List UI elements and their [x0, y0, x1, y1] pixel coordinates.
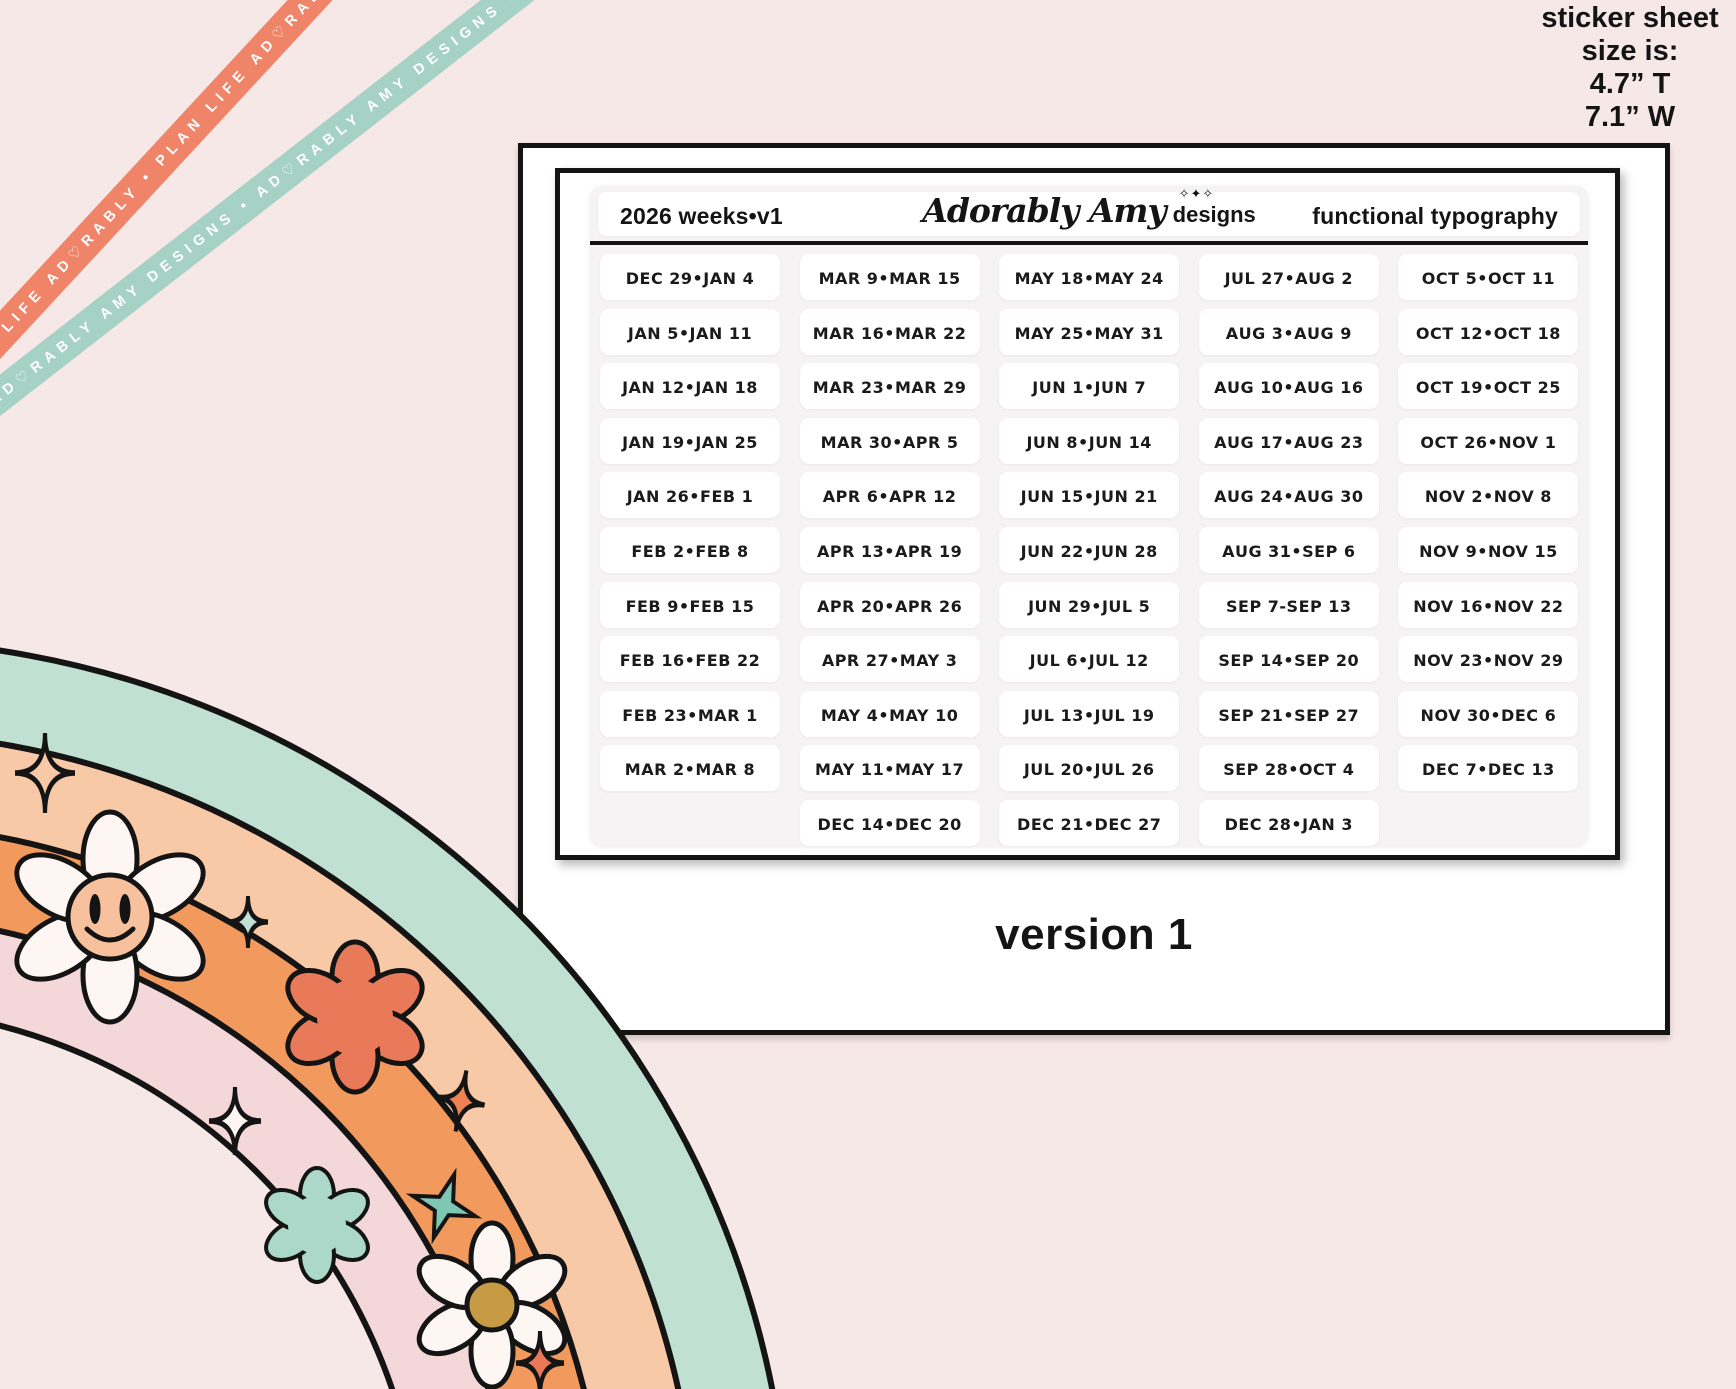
week-range-sticker: Aug 24•Aug 30 — [1199, 472, 1379, 518]
week-range-sticker: Jul 6•Jul 12 — [999, 636, 1179, 682]
size-note: sticker sheet size is: 4.7” T 7.1” W — [1470, 2, 1736, 134]
week-range-sticker: Oct 19•Oct 25 — [1398, 363, 1578, 409]
week-range-sticker: Nov 2•Nov 8 — [1398, 472, 1578, 518]
week-range-sticker: Aug 31•Sep 6 — [1199, 527, 1379, 573]
week-range-sticker: Jun 29•Jul 5 — [999, 582, 1179, 628]
week-range-sticker: Dec 14•Dec 20 — [800, 800, 980, 846]
size-note-line: sticker sheet — [1470, 2, 1736, 35]
product-image: PLAN LIFE AD♡RABLY • PLAN LIFE AD♡RABLY … — [0, 0, 1736, 1389]
size-note-line: 7.1” W — [1470, 101, 1736, 134]
week-range-sticker: Mar 9•Mar 15 — [800, 254, 980, 300]
week-range-sticker: Oct 12•Oct 18 — [1398, 309, 1578, 355]
week-range-sticker: Sep 7-Sep 13 — [1199, 582, 1379, 628]
size-note-line: size is: — [1470, 35, 1736, 68]
week-range-sticker: Dec 29•Jan 4 — [600, 254, 780, 300]
week-range-sticker: Jul 13•Jul 19 — [999, 691, 1179, 737]
week-range-sticker: Jul 27•Aug 2 — [1199, 254, 1379, 300]
week-range-sticker: Mar 16•Mar 22 — [800, 309, 980, 355]
week-range-sticker: Aug 17•Aug 23 — [1199, 418, 1379, 464]
week-range-sticker: Jan 12•Jan 18 — [600, 363, 780, 409]
week-range-sticker: May 25•May 31 — [999, 309, 1179, 355]
week-range-sticker: Nov 16•Nov 22 — [1398, 582, 1578, 628]
week-range-sticker: May 18•May 24 — [999, 254, 1179, 300]
week-range-sticker: Nov 23•Nov 29 — [1398, 636, 1578, 682]
week-range-sticker: Aug 10•Aug 16 — [1199, 363, 1379, 409]
week-range-sticker: Mar 23•Mar 29 — [800, 363, 980, 409]
week-range-sticker: Nov 30•Dec 6 — [1398, 691, 1578, 737]
week-range-sticker: Mar 30•Apr 5 — [800, 418, 980, 464]
week-range-sticker: Sep 21•Sep 27 — [1199, 691, 1379, 737]
week-range-sticker: Sep 28•Oct 4 — [1199, 745, 1379, 791]
week-range-sticker: Nov 9•Nov 15 — [1398, 527, 1578, 573]
week-range-sticker: Oct 5•Oct 11 — [1398, 254, 1578, 300]
week-range-sticker: Aug 3•Aug 9 — [1199, 309, 1379, 355]
week-range-sticker: Sep 14•Sep 20 — [1199, 636, 1379, 682]
week-range-sticker: Feb 9•Feb 15 — [600, 582, 780, 628]
week-range-sticker: Jul 20•Jul 26 — [999, 745, 1179, 791]
week-range-sticker: Feb 2•Feb 8 — [600, 527, 780, 573]
rainbow-illustration — [0, 625, 820, 1389]
week-range-sticker: Jun 15•Jun 21 — [999, 472, 1179, 518]
week-range-sticker: Jun 1•Jun 7 — [999, 363, 1179, 409]
week-range-sticker: Jun 8•Jun 14 — [999, 418, 1179, 464]
week-range-sticker: Dec 21•Dec 27 — [999, 800, 1179, 846]
week-range-sticker: May 11•May 17 — [800, 745, 980, 791]
week-range-sticker: Jan 5•Jan 11 — [600, 309, 780, 355]
week-range-sticker: Apr 20•Apr 26 — [800, 582, 980, 628]
week-range-sticker: Apr 6•Apr 12 — [800, 472, 980, 518]
week-range-sticker: May 4•May 10 — [800, 691, 980, 737]
week-range-sticker: Oct 26•Nov 1 — [1398, 418, 1578, 464]
week-range-sticker: Apr 13•Apr 19 — [800, 527, 980, 573]
week-range-sticker: Dec 7•Dec 13 — [1398, 745, 1578, 791]
ribbon-adorably-amy-designs: AD♡RABLY AMY DESIGNS • AD♡RABLY AMY DESI… — [0, 0, 548, 432]
week-range-sticker: Jan 19•Jan 25 — [600, 418, 780, 464]
size-note-line: 4.7” T — [1470, 68, 1736, 101]
week-range-sticker: Jun 22•Jun 28 — [999, 527, 1179, 573]
week-range-sticker: Apr 27•May 3 — [800, 636, 980, 682]
week-range-sticker: Jan 26•Feb 1 — [600, 472, 780, 518]
week-range-sticker: Dec 28•Jan 3 — [1199, 800, 1379, 846]
